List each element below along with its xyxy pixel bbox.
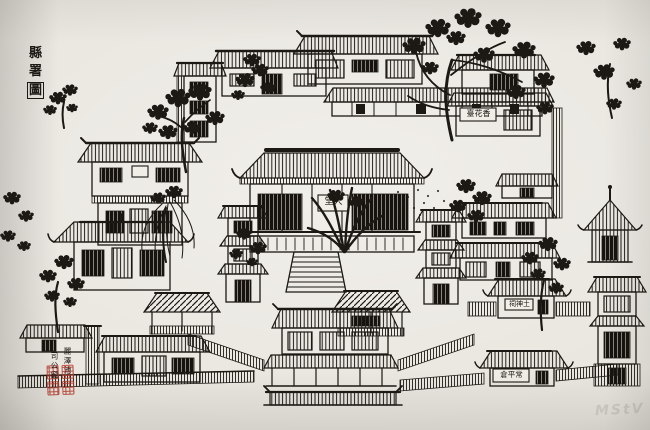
small-house-right	[496, 174, 558, 198]
tree-left-lower	[39, 255, 84, 332]
title-char-3-boxed: 圖	[27, 82, 44, 99]
right-courtyard-wall	[552, 108, 562, 218]
map-title: 縣 署 圖	[27, 46, 44, 99]
tree-right-edge-top	[576, 38, 641, 118]
flared-pavilion-left	[48, 214, 194, 290]
tree-top-left-small	[43, 84, 78, 128]
shrubs-left-edge	[0, 192, 34, 251]
pond-label-column: 麗澤池	[62, 347, 73, 383]
title-char-2: 署	[27, 64, 44, 79]
ink-drawing	[0, 0, 650, 430]
great-hall-plaque: 堂大	[319, 195, 348, 210]
photo-watermark: MStV	[595, 401, 645, 420]
title-char-1: 縣	[27, 46, 44, 61]
yamen-map-page: 縣 署 圖 堂大 臺花香 祠神土 倉平常 麗澤池 司公廨 MStV	[0, 0, 650, 430]
incense-pavilion	[447, 55, 553, 136]
jail-house-small	[20, 325, 92, 352]
right-hall-upper	[452, 203, 556, 238]
office-label-column: 司公廨	[49, 352, 60, 388]
awning-kiosk-left	[144, 293, 220, 334]
hexagonal-pavilion	[578, 185, 642, 262]
granary-plaque: 倉平常	[494, 369, 529, 381]
incense-pavilion-plaque: 臺花香	[461, 108, 496, 120]
screen-wall	[264, 386, 402, 405]
earth-god-shrine-plaque: 祠神土	[506, 299, 533, 309]
